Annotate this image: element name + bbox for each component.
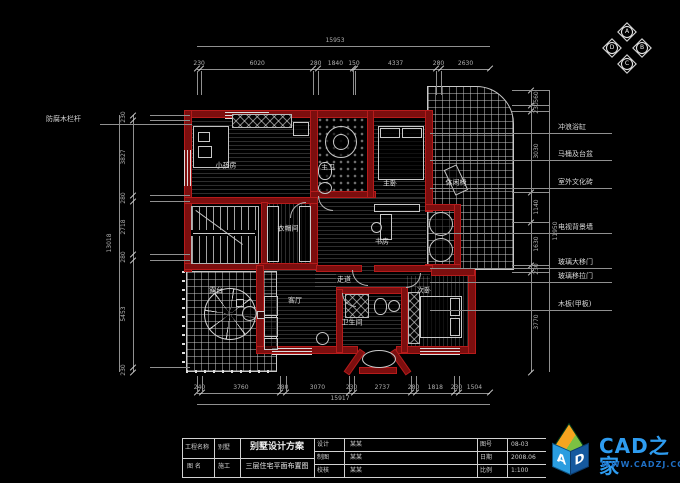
tb-divider [507, 438, 508, 478]
tb-col-b-label-1: 日期 [480, 455, 492, 461]
pillow [380, 128, 400, 138]
bay-bathtub [362, 350, 396, 368]
dim-ext [441, 71, 442, 95]
dim-ext [512, 222, 549, 223]
dim-ext [355, 71, 356, 95]
annotation-right-4: 玻璃大移门 [558, 259, 593, 266]
round-fixture [429, 238, 453, 262]
leader-line [430, 160, 612, 161]
annotation-right-0: 冲浪浴缸 [558, 124, 586, 131]
dim-ext [150, 254, 190, 255]
dim-seg-right-4: 1630 [534, 236, 540, 251]
dim-total-line-bottom [197, 404, 490, 405]
dim-ext [318, 71, 319, 95]
leader-line [430, 282, 612, 283]
dim-seg-left-1: 3827 [121, 150, 127, 165]
railing-dots-left [182, 271, 185, 370]
room-label-10: 次卧 [417, 288, 431, 295]
leader-line [430, 268, 612, 269]
dim-ext [150, 260, 190, 261]
nightstand [293, 122, 309, 136]
dim-ext [512, 272, 549, 273]
kids-pillow [198, 132, 210, 142]
patio-table [242, 306, 257, 321]
dim-seg-bottom-9: 1504 [467, 385, 482, 391]
dim-ext [197, 71, 198, 95]
dim-tick [528, 369, 534, 375]
dim-ext [150, 120, 190, 121]
dim-seg-bottom-7: 1818 [428, 385, 443, 391]
annotation-right-1: 马桶及台盆 [558, 151, 593, 158]
tb-col-a-label-0: 设计 [317, 442, 329, 448]
toilet [374, 298, 387, 315]
tv-cabinet [374, 204, 420, 212]
tb-project-value: 别墅 [218, 445, 230, 451]
dim-line-bottom [197, 393, 490, 394]
dim-ext [150, 115, 190, 116]
annotation-right-3: 电视背景墙 [558, 224, 593, 231]
dim-seg-bottom-5: 2737 [375, 385, 390, 391]
dim-ext [313, 71, 314, 95]
tb-col-b-value-0: 08-03 [511, 442, 528, 448]
basin [388, 300, 400, 312]
dim-ext [512, 111, 549, 112]
dim-seg-right-2: 3030 [534, 144, 540, 159]
tb-project-label: 工程名称 [185, 445, 209, 451]
cad-drawing-viewport: A B C D 防腐木栏杆 工程名称 别墅 别墅设计方案 图 名 施工 三层住宅… [0, 0, 680, 483]
dim-seg-left-3: 2718 [121, 220, 127, 235]
leader-line [430, 310, 612, 311]
dim-ext [150, 367, 190, 368]
tb-project-title: 别墅设计方案 [242, 443, 312, 452]
side-table [264, 338, 278, 350]
room-label-7: 客厅 [288, 298, 302, 305]
dim-ext [201, 71, 202, 95]
annotation-left: 防腐木栏杆 [46, 116, 81, 123]
wall-segment [185, 198, 317, 203]
dim-seg-top-5: 4337 [388, 61, 403, 67]
dim-tick [487, 389, 493, 395]
tb-divider [477, 438, 478, 478]
dim-total-line-top [197, 46, 490, 47]
wall-segment [455, 205, 460, 270]
dim-seg-bottom-3: 3070 [310, 385, 325, 391]
room-label-2: 主卫 [321, 165, 335, 172]
tb-drawing-label: 图 名 [187, 464, 201, 470]
wall-segment [469, 271, 475, 353]
dim-ext [286, 376, 287, 392]
cadzj-logo[interactable]: A D CAD之家 WWW.CADZJ.COM [546, 430, 680, 483]
tb-col-b-label-2: 比例 [480, 468, 492, 474]
pillow [450, 318, 460, 336]
leader-line [430, 133, 612, 134]
dim-total-top: 15953 [325, 38, 344, 44]
wall-segment [402, 288, 407, 352]
dim-total-left: 13018 [107, 233, 113, 252]
dim-ext [416, 376, 417, 392]
leader-line [430, 233, 612, 234]
tb-divider [182, 458, 314, 459]
leader-line [430, 188, 612, 189]
dim-ext [512, 192, 549, 193]
index-letter-bottom: C [621, 58, 633, 70]
wall-segment [432, 269, 474, 275]
tb-col-a-value-0: 某某 [350, 442, 362, 448]
dim-seg-left-6: 230 [121, 364, 127, 375]
tb-col-a-label-2: 校核 [317, 468, 329, 474]
dim-ext [354, 376, 355, 392]
room-label-0: 小孩房 [216, 163, 237, 170]
wall-segment [257, 266, 263, 352]
wall-segment [311, 111, 317, 266]
dim-tick [487, 65, 493, 71]
dim-seg-top-7: 2630 [458, 61, 473, 67]
annotation-right-6: 木板(甲板) [558, 301, 591, 308]
window [272, 348, 312, 355]
wall-segment [426, 111, 432, 211]
dim-line-top [197, 69, 490, 70]
window [420, 348, 460, 355]
patio-chair [257, 311, 265, 319]
stair-rail [193, 233, 255, 234]
dim-ext [150, 195, 190, 196]
dim-total-bottom: 15917 [330, 396, 349, 402]
dim-ext [150, 201, 190, 202]
patio-chair [236, 299, 244, 307]
tb-col-b-value-2: 1:100 [511, 468, 528, 474]
railing-dots-bottom [186, 370, 276, 373]
wall-segment [185, 264, 317, 269]
dim-ext [512, 90, 549, 91]
room-label-9: 卫生间 [342, 320, 363, 327]
dim-line-left [133, 115, 134, 372]
dim-seg-top-1: 6020 [250, 61, 265, 67]
annotation-right-5: 玻璃移拉门 [558, 273, 593, 280]
closet-cabinet [267, 206, 279, 262]
tb-divider [240, 438, 241, 478]
logo-title: CAD之家 [599, 436, 680, 476]
room-label-4: 书房 [375, 239, 389, 246]
dim-ext [202, 376, 203, 392]
tb-drawing-value: 施工 [218, 464, 230, 470]
annotation-right-2: 室外文化砖 [558, 179, 593, 186]
bay-wall [360, 368, 396, 373]
leader-line-left [100, 124, 192, 125]
index-letter-top: A [621, 26, 633, 38]
tb-col-b-label-0: 图号 [480, 442, 492, 448]
tb-col-a-value-1: 某某 [350, 455, 362, 461]
tb-divider [314, 438, 315, 478]
dim-ext [353, 71, 354, 95]
wall-segment [375, 266, 432, 271]
dim-ext [459, 376, 460, 392]
tb-col-b-value-1: 2008.06 [511, 455, 536, 461]
tb-col-a-label-1: 制图 [317, 455, 329, 461]
room-label-8: 走道 [337, 277, 351, 284]
wall-segment [185, 111, 432, 117]
dim-seg-bottom-1: 3760 [233, 385, 248, 391]
wall-segment [368, 111, 373, 197]
jacuzzi-inner [333, 134, 349, 150]
wardrobe [232, 114, 292, 128]
basin [318, 182, 332, 194]
dim-seg-right-3: 1140 [534, 199, 540, 214]
armchair [264, 296, 278, 316]
index-letter-left: D [606, 42, 618, 54]
pillow [402, 128, 422, 138]
dim-seg-left-4: 280 [121, 251, 127, 262]
dim-seg-right-6: 3770 [534, 314, 540, 329]
dim-seg-left-5: 5453 [121, 306, 127, 321]
dim-ext [512, 105, 549, 106]
armchair [264, 317, 278, 337]
tb-col-a-value-2: 某某 [350, 468, 362, 474]
window [184, 150, 191, 186]
room-label-6: 露台 [209, 288, 223, 295]
dim-seg-top-3: 1840 [328, 61, 343, 67]
index-letter-right: B [636, 42, 648, 54]
tb-drawing-title: 三层住宅平面布置图 [242, 463, 312, 470]
logo-url[interactable]: WWW.CADZJ.COM [601, 461, 680, 469]
desk-chair [371, 222, 382, 233]
kids-desk-item [198, 146, 212, 158]
dim-ext [512, 265, 549, 266]
tb-divider [214, 438, 215, 478]
room-label-3: 主卧 [383, 181, 397, 188]
tb-divider [344, 438, 345, 478]
dim-seg-left-0: 230 [121, 112, 127, 123]
wardrobe [408, 292, 420, 344]
room-label-5: 休闲椅 [446, 180, 467, 187]
dim-ext [436, 71, 437, 95]
room-label-1: 衣帽间 [278, 226, 299, 233]
pillow [450, 298, 460, 316]
dim-seg-left-2: 280 [121, 192, 127, 203]
stool [316, 332, 329, 345]
